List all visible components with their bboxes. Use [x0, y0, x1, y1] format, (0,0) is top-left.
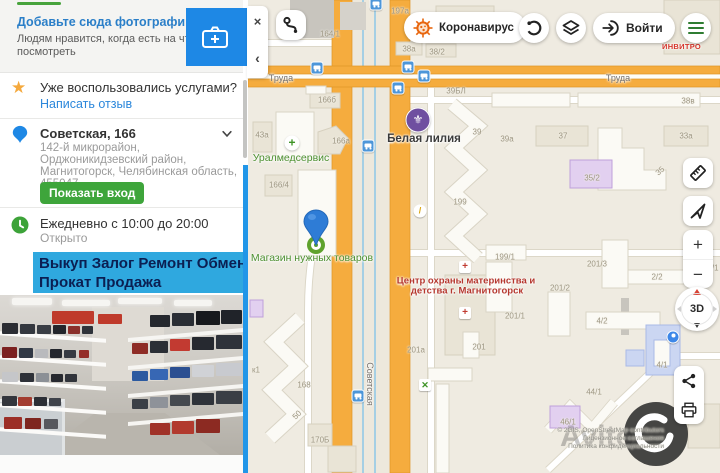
location-pin-icon [11, 125, 29, 143]
photo-detail [192, 393, 214, 405]
chevron-down-icon[interactable] [220, 127, 234, 141]
bus-stop-icon[interactable] [352, 390, 365, 403]
photo-detail [221, 310, 242, 324]
photo-detail [18, 397, 32, 406]
hospital-icon[interactable]: + [459, 307, 471, 319]
place-card-sidebar: Добавьте сюда фотографий! Людям нравится… [0, 0, 243, 473]
photo-detail [98, 314, 122, 324]
login-button[interactable]: Войти [593, 13, 675, 43]
photo-detail [37, 325, 51, 334]
3d-compass-control[interactable]: 3D [675, 287, 719, 331]
photo-detail [150, 423, 170, 435]
camera-plus-icon [200, 24, 230, 50]
sidebar-scrollbar[interactable] [243, 80, 247, 158]
app-window: { "colors":{"brand_blue":"#1E88E5","link… [0, 0, 720, 473]
print-button[interactable] [674, 395, 704, 424]
open-status: Открыто [40, 232, 87, 245]
invitro-label: ИНВИТРО [662, 42, 701, 51]
photo-detail [82, 326, 93, 334]
photo-detail [2, 347, 17, 358]
photo-detail [20, 324, 35, 334]
zoom-in-button[interactable]: + [683, 230, 713, 259]
clock-icon [11, 216, 29, 234]
medical-cross-icon[interactable]: + [285, 136, 300, 151]
privacy-link[interactable]: Политика конфиденциальности [557, 443, 664, 451]
photo-detail [49, 398, 61, 406]
review-question: Уже воспользовались услугами? [40, 80, 237, 95]
fleur-de-lis-icon[interactable]: ⚜ [406, 108, 431, 133]
photo-detail [52, 311, 94, 324]
photo-prompt-title: Добавьте сюда фотографий! [17, 15, 197, 29]
share-button[interactable] [674, 366, 704, 395]
share-icon [680, 372, 698, 390]
photo-detail [132, 371, 148, 381]
photo-detail [68, 326, 80, 334]
photo-detail [170, 395, 190, 406]
hospital-icon[interactable]: + [459, 261, 471, 273]
map-attribution: © 2GIS, OpenStreetMap contributors Лицен… [557, 427, 664, 451]
collapse-panel-button[interactable]: ‹ [247, 50, 268, 66]
photo-detail [20, 373, 34, 382]
photo-detail [216, 391, 242, 404]
photo-detail [19, 348, 33, 358]
compass-button[interactable] [519, 13, 549, 43]
star-icon: ★ [11, 79, 29, 97]
banner-line: Прокат Продажа [39, 273, 243, 292]
copyright-text: © 2GIS, OpenStreetMap contributors [557, 427, 664, 435]
banner-line: Выкуп Залог Ремонт Обмен [39, 254, 243, 273]
photo-detail [132, 343, 148, 354]
progress-bar [17, 2, 61, 5]
photo-detail [192, 365, 214, 377]
photo-detail [64, 350, 76, 358]
bus-stop-icon[interactable] [418, 70, 431, 83]
route-icon [281, 15, 301, 35]
photo-detail [53, 325, 66, 334]
printer-icon [680, 401, 698, 419]
review-block: ★ Уже воспользовались услугами? Написать… [0, 72, 243, 118]
bus-stop-icon[interactable] [362, 140, 375, 153]
pharmacy-icon[interactable]: ✕ [419, 379, 431, 391]
photo-detail [150, 315, 170, 327]
address-line: Орджоникидзевский район, [40, 154, 186, 167]
photo-detail [132, 399, 148, 409]
bus-stop-icon[interactable] [311, 62, 324, 75]
schedule-text: Ежедневно с 10:00 до 20:00 [40, 216, 208, 231]
photo-detail [35, 349, 48, 358]
layers-button[interactable] [556, 13, 586, 43]
photo-detail [34, 397, 47, 406]
shop-icon[interactable]: / [414, 205, 427, 218]
photo-detail [172, 421, 194, 434]
photo-detail [36, 373, 49, 382]
photo-detail [150, 369, 168, 380]
show-entrance-button[interactable]: Показать вход [40, 182, 144, 204]
panel-edge-controls: × ‹ [247, 6, 268, 78]
compass-east-icon [713, 306, 717, 312]
photo-detail [196, 311, 220, 325]
photo-detail [192, 337, 214, 350]
coronavirus-button[interactable]: Коронавирус [404, 12, 526, 43]
zoom-control: + − [683, 230, 713, 288]
login-label: Войти [626, 21, 663, 35]
compass-icon [524, 18, 544, 38]
login-icon [601, 18, 621, 38]
layers-icon [560, 17, 582, 39]
bus-stop-icon[interactable] [402, 61, 415, 74]
bus-stop-icon[interactable] [392, 82, 405, 95]
photo-detail [44, 419, 58, 429]
photo-detail [62, 300, 110, 306]
ruler-icon [688, 163, 708, 183]
close-panel-button[interactable]: × [247, 14, 268, 29]
address-title: Советская, 166 [40, 126, 136, 141]
locate-button[interactable] [683, 196, 713, 226]
address-line: 142-й микрорайон, [40, 142, 140, 155]
poi-label[interactable]: Уралмедсервис [253, 152, 330, 164]
zoom-out-button[interactable]: − [683, 259, 713, 289]
person-marker-icon[interactable] [667, 331, 680, 344]
photo-detail [79, 350, 89, 358]
photo-prompt-block: Добавьте сюда фотографий! Людям нравится… [0, 0, 243, 73]
services-banner: Выкуп Залог Ремонт Обмен Прокат Продажа [33, 252, 243, 293]
photo-detail [216, 363, 242, 376]
virus-icon [412, 17, 434, 39]
sidebar-footer [0, 455, 243, 473]
photo-detail [170, 367, 190, 378]
photo-detail [12, 298, 52, 305]
navigation-arrow-icon [688, 201, 708, 221]
add-photo-button[interactable] [186, 8, 243, 66]
ruler-button[interactable] [683, 158, 713, 188]
photo-detail [51, 374, 63, 382]
poi-label[interactable]: детства г. Магнитогорск [411, 286, 523, 297]
store-photo[interactable] [0, 295, 243, 455]
photo-prompt-subtitle: Людям нравится, когда есть на что [17, 33, 196, 45]
address-block: Советская, 166 142-й микрорайон, Орджони… [0, 118, 243, 207]
hamburger-icon [687, 21, 705, 35]
license-link[interactable]: Лицензионное соглашение [557, 435, 664, 443]
share-print-panel [674, 366, 704, 424]
coronavirus-label: Коронавирус [439, 22, 514, 34]
photo-detail [2, 323, 18, 334]
photo-detail [25, 418, 41, 429]
photo-detail [4, 417, 22, 429]
photo-detail [172, 313, 194, 326]
poi-label[interactable]: Белая лилия [387, 133, 461, 145]
3d-button[interactable]: 3D [681, 293, 713, 325]
photo-detail [216, 335, 242, 349]
photo-detail [65, 374, 77, 382]
poi-label[interactable]: Магазин нужных товаров [251, 252, 373, 264]
photo-detail [150, 341, 168, 353]
photo-detail [2, 372, 18, 382]
photo-detail [196, 419, 220, 433]
photo-detail [170, 339, 190, 351]
photo-detail [150, 397, 168, 408]
hours-block: Ежедневно с 10:00 до 20:00 Открыто [0, 207, 243, 252]
route-button[interactable] [276, 10, 306, 40]
bus-stop-icon[interactable] [370, 0, 383, 11]
photo-detail [118, 298, 162, 304]
write-review-link[interactable]: Написать отзыв [40, 97, 132, 111]
photo-detail [174, 300, 212, 306]
menu-button[interactable] [681, 13, 711, 43]
photo-detail [50, 349, 62, 358]
photo-panel-edge [243, 165, 248, 473]
address-line: Магнитогорск, Челябинская область, [40, 166, 237, 179]
photo-prompt-subtitle: посмотреть [17, 46, 76, 58]
photo-detail [2, 396, 17, 406]
map-pin[interactable] [302, 208, 330, 246]
